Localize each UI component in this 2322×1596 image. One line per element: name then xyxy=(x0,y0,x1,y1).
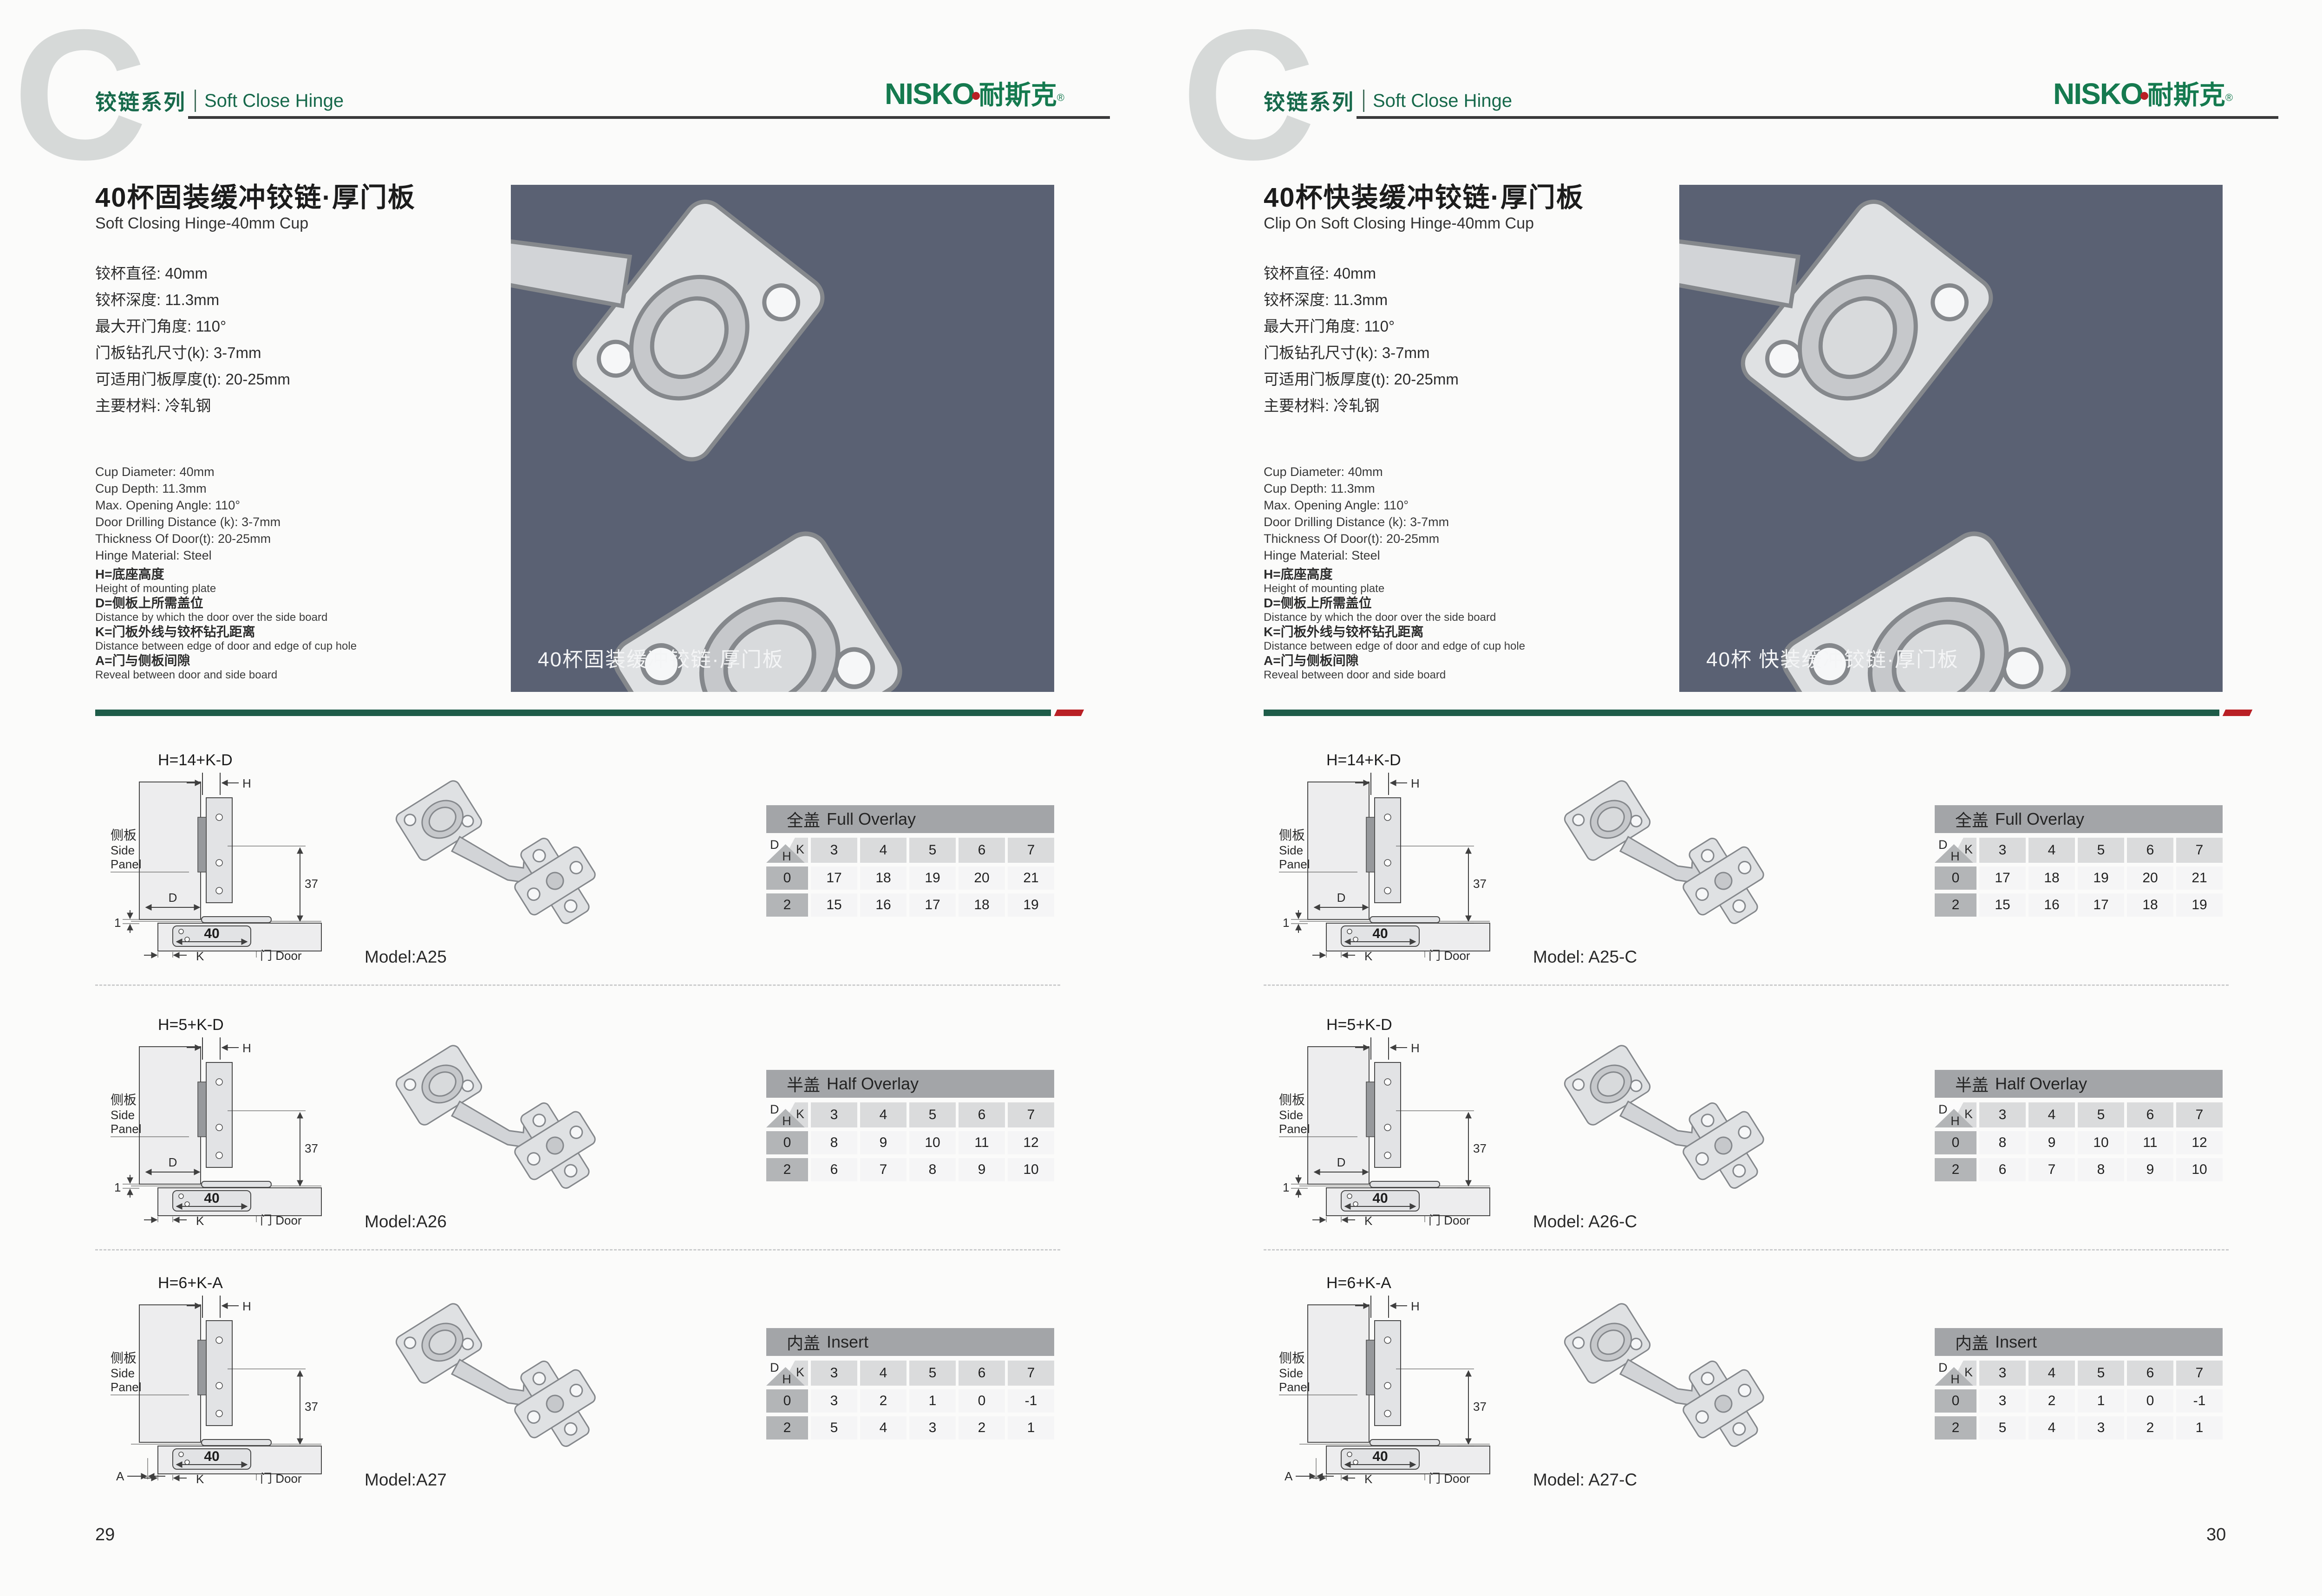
spec-line-cn: 铰杯深度: 11.3mm xyxy=(1264,287,1459,313)
registered-mark: ® xyxy=(1057,92,1064,104)
table-cell: 8 xyxy=(909,1158,956,1181)
table-title-bar: 内盖 Insert xyxy=(766,1328,1054,1356)
dim-k-label: K xyxy=(1364,949,1373,962)
hinge-thumbnail xyxy=(1538,756,1798,932)
table-title-cn: 半盖 xyxy=(1955,1072,1989,1096)
table-cell: 5 xyxy=(1979,1416,2026,1440)
table-grid: D K H 345670891011122678910 xyxy=(1935,1102,2223,1181)
table-column-header: 7 xyxy=(1008,1361,1054,1386)
spec-line-en: Cup Diameter: 40mm xyxy=(1264,463,1449,480)
table-cell: 11 xyxy=(2127,1131,2173,1154)
table-cell: 20 xyxy=(959,866,1005,890)
table-column-header: 4 xyxy=(860,838,907,863)
table-column-header: 6 xyxy=(959,838,1005,863)
spec-line-cn: 主要材料: 冷轧钢 xyxy=(1264,392,1459,419)
table-cell: 4 xyxy=(860,1416,907,1440)
product-row: H=5+K-D H 侧板 Side Panel 37 40 xyxy=(1168,1013,2322,1231)
series-header: 铰链系列 Soft Close Hinge xyxy=(95,85,344,116)
dim-40-label: 40 xyxy=(204,1191,219,1206)
table-cell: 3 xyxy=(811,1389,857,1413)
side-panel-label-en2: Panel xyxy=(111,1122,142,1136)
table-cell: 1 xyxy=(1008,1416,1054,1440)
product-row: H=6+K-A H 侧板 Side Panel 37 40 xyxy=(0,1271,1168,1490)
legend-item: D=侧板上所需盖位Distance by which the door over… xyxy=(1264,595,1525,624)
installation-diagram: H=6+K-A H 侧板 Side Panel 37 40 xyxy=(103,1271,335,1485)
table-column-header: 6 xyxy=(959,1102,1005,1127)
table-title-en: Insert xyxy=(1995,1332,2037,1352)
brand-logo-text-cn: 耐斯克 xyxy=(979,80,1057,110)
side-panel-label-en2: Panel xyxy=(1279,1380,1310,1394)
side-panel-label-cn: 侧板 xyxy=(111,1351,137,1365)
table-corner-cell: D K H xyxy=(1935,838,1976,863)
table-cell: 10 xyxy=(1008,1158,1054,1181)
table-cell: 11 xyxy=(959,1131,1005,1154)
dim-37-label: 37 xyxy=(305,1141,318,1155)
dim-h-label: H xyxy=(242,1299,251,1313)
legend-item: K=门板外线与铰杯钻孔距离Distance between edge of do… xyxy=(1264,624,1525,653)
side-panel-label-en1: Side xyxy=(1279,1366,1303,1380)
table-column-header: 6 xyxy=(2127,1102,2173,1127)
page-number: 29 xyxy=(95,1525,115,1545)
catalog-page: C 铰链系列 Soft Close Hinge NISKO耐斯克® 40杯快装缓… xyxy=(1168,0,2322,1596)
table-cell: 18 xyxy=(860,866,907,890)
table-title-bar: 全盖 Full Overlay xyxy=(1935,805,2223,833)
spec-line-en: Cup Depth: 11.3mm xyxy=(95,480,280,497)
dim-d-label: D xyxy=(1337,1155,1346,1169)
door-label: 门 Door xyxy=(260,1213,302,1227)
table-cell: -1 xyxy=(1008,1389,1054,1413)
door-label: 门 Door xyxy=(1428,1213,1470,1227)
product-title-cn: 40杯快装缓冲铰链·厚门板 xyxy=(1264,176,1584,215)
spec-line-en: Cup Depth: 11.3mm xyxy=(1264,480,1449,497)
table-row-header: 2 xyxy=(1935,893,1976,917)
corner-label-d: D xyxy=(1938,1361,1948,1375)
installation-diagram: H=5+K-D H 侧板 Side Panel 37 40 xyxy=(1272,1013,1504,1227)
table-row-header: 0 xyxy=(766,1131,808,1154)
table-column-header: 5 xyxy=(2078,1102,2124,1127)
mounting-formula: H=14+K-D xyxy=(158,751,233,769)
section-divider xyxy=(1264,710,2219,716)
dim-a-label: A xyxy=(116,1469,124,1483)
legend-term-cn: K=门板外线与铰杯钻孔距离 xyxy=(95,624,357,639)
table-title-bar: 半盖 Half Overlay xyxy=(1935,1070,2223,1098)
table-title-bar: 全盖 Full Overlay xyxy=(766,805,1054,833)
legend-term-cn: H=底座高度 xyxy=(95,567,357,582)
model-label: Model: A26-C xyxy=(1533,1212,1637,1231)
divider-red-tip xyxy=(2223,710,2253,716)
series-title-cn: 铰链系列 xyxy=(1264,85,1355,116)
diagram-shapes xyxy=(1299,1305,1490,1474)
table-title-cn: 内盖 xyxy=(1955,1330,1989,1354)
table-cell: 1 xyxy=(2078,1389,2124,1413)
table-column-header: 3 xyxy=(811,1102,857,1127)
table-cell: 15 xyxy=(1979,893,2026,917)
dim-40-label: 40 xyxy=(204,1449,219,1464)
dim-37-label: 37 xyxy=(305,877,318,891)
table-row-header: 2 xyxy=(766,1416,808,1440)
table-cell: 1 xyxy=(2176,1416,2223,1440)
diagram-shapes xyxy=(131,782,321,951)
specs-en-list: Cup Diameter: 40mmCup Depth: 11.3mmMax. … xyxy=(95,463,280,564)
table-column-header: 7 xyxy=(2176,838,2223,863)
legend-item: D=侧板上所需盖位Distance by which the door over… xyxy=(95,595,357,624)
hinge-photo-illustration xyxy=(511,185,1054,692)
installation-diagram: H=5+K-D H 侧板 Side Panel 37 40 xyxy=(103,1013,335,1227)
spec-line-cn: 铰杯深度: 11.3mm xyxy=(95,287,290,313)
installation-diagram: H=14+K-D H 侧板 Side Panel 37 40 xyxy=(103,749,335,962)
spec-line-cn: 最大开门角度: 110° xyxy=(95,313,290,339)
table-cell: 5 xyxy=(811,1416,857,1440)
side-panel-label-en1: Side xyxy=(111,843,135,857)
side-panel-label-cn: 侧板 xyxy=(1279,828,1305,842)
table-cell: 19 xyxy=(2078,866,2124,890)
corner-label-d: D xyxy=(1938,838,1948,852)
table-cell: 18 xyxy=(2028,866,2075,890)
corner-label-d: D xyxy=(770,1102,779,1117)
table-cell: 19 xyxy=(909,866,956,890)
table-column-header: 3 xyxy=(1979,1102,2026,1127)
table-grid: D K H 345670891011122678910 xyxy=(766,1102,1054,1181)
table-cell: 7 xyxy=(860,1158,907,1181)
table-cell: 3 xyxy=(1979,1389,2026,1413)
diagram-shapes xyxy=(131,1305,321,1474)
table-cell: 19 xyxy=(1008,893,1054,917)
door-label: 门 Door xyxy=(1428,1472,1470,1485)
spec-line-en: Thickness Of Door(t): 20-25mm xyxy=(1264,530,1449,547)
legend-term-en: Distance between edge of door and edge o… xyxy=(95,639,357,653)
dim-d-label: D xyxy=(1337,891,1346,905)
side-panel-label-en1: Side xyxy=(1279,1108,1303,1122)
mounting-formula: H=6+K-A xyxy=(158,1274,223,1292)
spec-line-cn: 铰杯直径: 40mm xyxy=(95,260,290,287)
table-cell: 16 xyxy=(2028,893,2075,917)
table-cell: 17 xyxy=(1979,866,2026,890)
table-column-header: 7 xyxy=(1008,838,1054,863)
brand-logo-text-en: NISKO xyxy=(2053,77,2143,111)
table-cell: 12 xyxy=(2176,1131,2223,1154)
header-rule xyxy=(1357,116,2278,119)
table-cell: 9 xyxy=(2127,1158,2173,1181)
row-separator xyxy=(95,1249,1060,1251)
corner-label-k: K xyxy=(1964,1365,1973,1380)
corner-label-k: K xyxy=(796,1365,804,1380)
spec-line-cn: 门板钻孔尺寸(k): 3-7mm xyxy=(1264,339,1459,366)
spec-line-cn: 门板钻孔尺寸(k): 3-7mm xyxy=(95,339,290,366)
table-cell: 0 xyxy=(959,1389,1005,1413)
spec-line-en: Max. Opening Angle: 110° xyxy=(95,497,280,514)
side-panel-label-cn: 侧板 xyxy=(1279,1093,1305,1107)
spec-line-en: Thickness Of Door(t): 20-25mm xyxy=(95,530,280,547)
dim-a-label: A xyxy=(1285,1469,1293,1483)
table-cell: 8 xyxy=(2078,1158,2124,1181)
side-panel-label-cn: 侧板 xyxy=(111,1093,137,1107)
side-panel-label-en2: Panel xyxy=(1279,857,1310,871)
dim-h-label: H xyxy=(1411,776,1420,790)
table-column-header: 6 xyxy=(959,1361,1005,1386)
table-column-header: 5 xyxy=(2078,838,2124,863)
table-title-en: Full Overlay xyxy=(1995,809,2084,829)
table-title-en: Insert xyxy=(827,1332,868,1352)
table-row-header: 2 xyxy=(1935,1158,1976,1181)
hinge-thumbnail xyxy=(1538,1278,1798,1455)
corner-label-h: H xyxy=(1950,849,1960,863)
side-panel-label-en2: Panel xyxy=(1279,1122,1310,1136)
side-panel-label-cn: 侧板 xyxy=(1279,1351,1305,1365)
corner-label-k: K xyxy=(1964,842,1973,857)
dim-1-label: 1 xyxy=(1283,916,1289,930)
table-title-bar: 半盖 Half Overlay xyxy=(766,1070,1054,1098)
divider-red-tip xyxy=(1054,710,1084,716)
specs-en-list: Cup Diameter: 40mmCup Depth: 11.3mmMax. … xyxy=(1264,463,1449,564)
table-cell: 6 xyxy=(811,1158,857,1181)
side-panel-label-en1: Side xyxy=(111,1366,135,1380)
corner-label-h: H xyxy=(1950,1114,1960,1127)
catalog-page: C 铰链系列 Soft Close Hinge NISKO耐斯克® 40杯固装缓… xyxy=(0,0,1168,1596)
product-title-en: Clip On Soft Closing Hinge-40mm Cup xyxy=(1264,215,1534,233)
dim-37-label: 37 xyxy=(305,1400,318,1414)
legend-term-en: Distance between edge of door and edge o… xyxy=(1264,639,1525,653)
corner-label-d: D xyxy=(770,838,779,852)
table-cell: 3 xyxy=(909,1416,956,1440)
model-label: Model:A27 xyxy=(365,1470,447,1490)
header-rule xyxy=(188,116,1110,119)
door-label: 门 Door xyxy=(1428,949,1470,962)
table-cell: 9 xyxy=(860,1131,907,1154)
legend-term-en: Height of mounting plate xyxy=(1264,582,1525,595)
table-cell: 16 xyxy=(860,893,907,917)
dimension-legend: H=底座高度Height of mounting plateD=侧板上所需盖位D… xyxy=(1264,567,1525,682)
spec-line-cn: 主要材料: 冷轧钢 xyxy=(95,392,290,419)
dim-k-label: K xyxy=(1364,1214,1373,1227)
table-row-header: 0 xyxy=(766,1389,808,1413)
dim-d-label: D xyxy=(169,1155,177,1169)
product-row: H=5+K-D H 侧板 Side Panel 37 40 xyxy=(0,1013,1168,1231)
overlay-table: 内盖 Insert D K H 3456703210-1254321 xyxy=(1935,1328,2223,1440)
table-row-header: 2 xyxy=(766,893,808,917)
dim-k-label: K xyxy=(196,1472,204,1485)
table-column-header: 5 xyxy=(2078,1361,2124,1386)
table-row-header: 0 xyxy=(1935,1131,1976,1154)
product-title-en: Soft Closing Hinge-40mm Cup xyxy=(95,215,308,233)
table-corner-cell: D K H xyxy=(1935,1102,1976,1127)
series-header: 铰链系列 Soft Close Hinge xyxy=(1264,85,1512,116)
table-cell: 18 xyxy=(2127,893,2173,917)
brand-logo: NISKO耐斯克® xyxy=(2053,79,2233,110)
side-panel-label-en1: Side xyxy=(111,1108,135,1122)
model-label: Model: A25-C xyxy=(1533,947,1637,967)
catalog-spread: C 铰链系列 Soft Close Hinge NISKO耐斯克® 40杯固装缓… xyxy=(0,0,2322,1596)
table-column-header: 5 xyxy=(909,1102,956,1127)
table-grid: D K H 3456703210-1254321 xyxy=(1935,1361,2223,1440)
table-cell: 2 xyxy=(959,1416,1005,1440)
table-title-cn: 全盖 xyxy=(787,807,820,831)
table-row-header: 0 xyxy=(1935,866,1976,890)
table-title-bar: 内盖 Insert xyxy=(1935,1328,2223,1356)
table-cell: 9 xyxy=(2028,1131,2075,1154)
dim-h-label: H xyxy=(1411,1041,1420,1055)
legend-item: H=底座高度Height of mounting plate xyxy=(1264,567,1525,595)
table-corner-cell: D K H xyxy=(766,1361,808,1386)
table-cell: 20 xyxy=(2127,866,2173,890)
table-column-header: 7 xyxy=(1008,1102,1054,1127)
table-title-cn: 半盖 xyxy=(787,1072,820,1096)
dimension-legend: H=底座高度Height of mounting plateD=侧板上所需盖位D… xyxy=(95,567,357,682)
hinge-thumbnail xyxy=(369,756,629,932)
legend-term-en: Reveal between door and side board xyxy=(95,668,357,682)
product-title-cn: 40杯固装缓冲铰链·厚门板 xyxy=(95,176,416,215)
product-row: H=14+K-D H 侧板 Side Panel 37 40 xyxy=(1168,749,2322,967)
table-cell: 2 xyxy=(2028,1389,2075,1413)
table-cell: 15 xyxy=(811,893,857,917)
table-column-header: 4 xyxy=(2028,1102,2075,1127)
table-column-header: 4 xyxy=(860,1361,907,1386)
table-column-header: 5 xyxy=(909,838,956,863)
spec-line-cn: 可适用门板厚度(t): 20-25mm xyxy=(1264,366,1459,392)
table-cell: -1 xyxy=(2176,1389,2223,1413)
corner-label-k: K xyxy=(1964,1107,1973,1121)
legend-item: H=底座高度Height of mounting plate xyxy=(95,567,357,595)
product-photo-panel: 40杯 快装缓冲铰链·厚门板 xyxy=(1679,185,2223,692)
dim-40-label: 40 xyxy=(204,926,219,941)
dim-1-label: 1 xyxy=(1283,1180,1289,1194)
corner-label-d: D xyxy=(1938,1102,1948,1117)
table-cell: 2 xyxy=(2127,1416,2173,1440)
table-column-header: 4 xyxy=(860,1102,907,1127)
mounting-formula: H=6+K-A xyxy=(1326,1274,1391,1292)
mounting-formula: H=5+K-D xyxy=(158,1016,224,1034)
corner-label-k: K xyxy=(796,842,804,857)
corner-label-h: H xyxy=(782,849,791,863)
dim-40-label: 40 xyxy=(1372,1191,1388,1206)
table-column-header: 6 xyxy=(2127,838,2173,863)
table-title-en: Half Overlay xyxy=(1995,1074,2087,1094)
table-row-header: 0 xyxy=(1935,1389,1976,1413)
table-column-header: 3 xyxy=(1979,1361,2026,1386)
legend-item: A=门与侧板间隙Reveal between door and side boa… xyxy=(95,653,357,682)
table-grid: D K H 345670171819202121516171819 xyxy=(1935,838,2223,917)
dim-37-label: 37 xyxy=(1473,1141,1487,1155)
table-cell: 17 xyxy=(2078,893,2124,917)
model-label: Model: A27-C xyxy=(1533,1470,1637,1490)
model-label: Model:A25 xyxy=(365,947,447,967)
table-grid: D K H 345670171819202121516171819 xyxy=(766,838,1054,917)
spec-line-cn: 可适用门板厚度(t): 20-25mm xyxy=(95,366,290,392)
dim-k-label: K xyxy=(196,949,204,962)
table-cell: 8 xyxy=(811,1131,857,1154)
specs-cn-list: 铰杯直径: 40mm铰杯深度: 11.3mm最大开门角度: 110°门板钻孔尺寸… xyxy=(1264,260,1459,419)
table-cell: 10 xyxy=(2176,1158,2223,1181)
spec-line-en: Door Drilling Distance (k): 3-7mm xyxy=(95,514,280,530)
model-label: Model:A26 xyxy=(365,1212,447,1231)
spec-line-en: Hinge Material: Steel xyxy=(1264,547,1449,564)
product-row: H=6+K-A H 侧板 Side Panel 37 40 xyxy=(1168,1271,2322,1490)
table-column-header: 3 xyxy=(811,838,857,863)
installation-diagram: H=6+K-A H 侧板 Side Panel 37 40 xyxy=(1272,1271,1504,1485)
table-cell: 0 xyxy=(2127,1389,2173,1413)
spec-line-en: Max. Opening Angle: 110° xyxy=(1264,497,1449,514)
table-grid: D K H 3456703210-1254321 xyxy=(766,1361,1054,1440)
product-photo-panel: 40杯固装缓冲铰链·厚门板 xyxy=(511,185,1054,692)
table-column-header: 4 xyxy=(2028,1361,2075,1386)
legend-term-cn: K=门板外线与铰杯钻孔距离 xyxy=(1264,624,1525,639)
dim-k-label: K xyxy=(1364,1472,1373,1485)
corner-label-h: H xyxy=(782,1114,791,1127)
row-separator xyxy=(95,984,1060,986)
mounting-formula: H=14+K-D xyxy=(1326,751,1401,769)
corner-label-d: D xyxy=(770,1361,779,1375)
dim-k-label: K xyxy=(196,1214,204,1227)
series-divider xyxy=(1363,90,1364,112)
table-cell: 21 xyxy=(2176,866,2223,890)
dim-40-label: 40 xyxy=(1372,1449,1388,1464)
legend-item: K=门板外线与铰杯钻孔距离Distance between edge of do… xyxy=(95,624,357,653)
dim-d-label: D xyxy=(169,891,177,905)
table-cell: 2 xyxy=(860,1389,907,1413)
brand-logo-text-cn: 耐斯克 xyxy=(2147,80,2225,110)
spec-line-en: Door Drilling Distance (k): 3-7mm xyxy=(1264,514,1449,530)
table-cell: 6 xyxy=(1979,1158,2026,1181)
legend-term-cn: D=侧板上所需盖位 xyxy=(1264,595,1525,611)
diagram-shapes xyxy=(1299,1047,1490,1216)
dim-37-label: 37 xyxy=(1473,877,1487,891)
table-column-header: 7 xyxy=(2176,1361,2223,1386)
table-row-header: 2 xyxy=(1935,1416,1976,1440)
door-label: 门 Door xyxy=(260,1472,302,1485)
table-column-header: 5 xyxy=(909,1361,956,1386)
table-corner-cell: D K H xyxy=(766,1102,808,1127)
table-title-en: Full Overlay xyxy=(827,809,916,829)
photo-caption: 40杯固装缓冲铰链·厚门板 xyxy=(538,643,784,672)
dim-37-label: 37 xyxy=(1473,1400,1487,1414)
series-divider xyxy=(195,90,196,112)
table-cell: 18 xyxy=(959,893,1005,917)
specs-cn-list: 铰杯直径: 40mm铰杯深度: 11.3mm最大开门角度: 110°门板钻孔尺寸… xyxy=(95,260,290,419)
series-title-cn: 铰链系列 xyxy=(95,85,186,116)
photo-caption: 40杯 快装缓冲铰链·厚门板 xyxy=(1706,643,1959,672)
registered-mark: ® xyxy=(2225,92,2233,104)
table-title-en: Half Overlay xyxy=(827,1074,919,1094)
overlay-table: 内盖 Insert D K H 3456703210-1254321 xyxy=(766,1328,1054,1440)
spec-line-en: Cup Diameter: 40mm xyxy=(95,463,280,480)
legend-term-en: Reveal between door and side board xyxy=(1264,668,1525,682)
legend-term-en: Distance by which the door over the side… xyxy=(1264,611,1525,624)
legend-term-en: Height of mounting plate xyxy=(95,582,357,595)
table-row-header: 0 xyxy=(766,866,808,890)
overlay-table: 半盖 Half Overlay D K H 345670891011122678… xyxy=(766,1070,1054,1181)
legend-item: A=门与侧板间隙Reveal between door and side boa… xyxy=(1264,653,1525,682)
table-cell: 17 xyxy=(909,893,956,917)
side-panel-label-en2: Panel xyxy=(111,857,142,871)
table-column-header: 4 xyxy=(2028,838,2075,863)
corner-label-k: K xyxy=(796,1107,804,1121)
legend-term-cn: A=门与侧板间隙 xyxy=(95,653,357,668)
table-cell: 10 xyxy=(909,1131,956,1154)
hinge-thumbnail xyxy=(369,1020,629,1197)
mounting-formula: H=5+K-D xyxy=(1326,1016,1392,1034)
side-panel-label-en2: Panel xyxy=(111,1380,142,1394)
door-label: 门 Door xyxy=(260,949,302,962)
spec-line-cn: 铰杯直径: 40mm xyxy=(1264,260,1459,287)
table-row-header: 2 xyxy=(766,1158,808,1181)
brand-logo: NISKO耐斯克® xyxy=(885,79,1064,110)
table-cell: 4 xyxy=(2028,1416,2075,1440)
product-row: H=14+K-D H 侧板 Side Panel 37 40 xyxy=(0,749,1168,967)
table-cell: 10 xyxy=(2078,1131,2124,1154)
row-separator xyxy=(1264,984,2229,986)
table-cell: 19 xyxy=(2176,893,2223,917)
overlay-table: 全盖 Full Overlay D K H 345670171819202121… xyxy=(766,805,1054,917)
legend-term-cn: A=门与侧板间隙 xyxy=(1264,653,1525,668)
